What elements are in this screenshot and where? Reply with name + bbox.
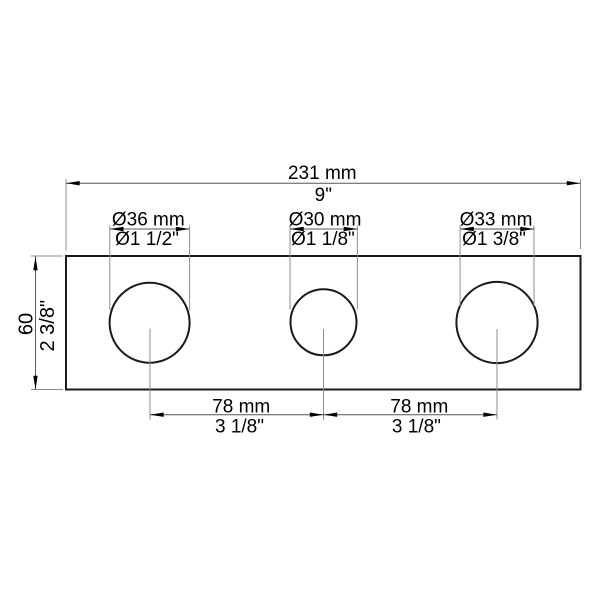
svg-text:60: 60 (16, 313, 38, 335)
svg-text:Ø30 mm: Ø30 mm (289, 210, 362, 231)
svg-text:Ø36 mm: Ø36 mm (112, 210, 185, 231)
svg-text:78 mm: 78 mm (212, 396, 270, 417)
svg-text:Ø1 1/8": Ø1 1/8" (291, 229, 355, 250)
svg-text:231 mm: 231 mm (288, 163, 357, 184)
svg-text:3 1/8": 3 1/8" (215, 416, 264, 437)
svg-text:2 3/8": 2 3/8" (37, 300, 59, 352)
svg-text:3 1/8": 3 1/8" (392, 416, 441, 437)
svg-text:Ø1 1/2": Ø1 1/2" (115, 229, 179, 250)
svg-text:Ø33 mm: Ø33 mm (460, 210, 533, 231)
svg-text:9": 9" (315, 185, 332, 206)
svg-text:78 mm: 78 mm (390, 396, 448, 417)
svg-text:Ø1 3/8": Ø1 3/8" (462, 229, 526, 250)
